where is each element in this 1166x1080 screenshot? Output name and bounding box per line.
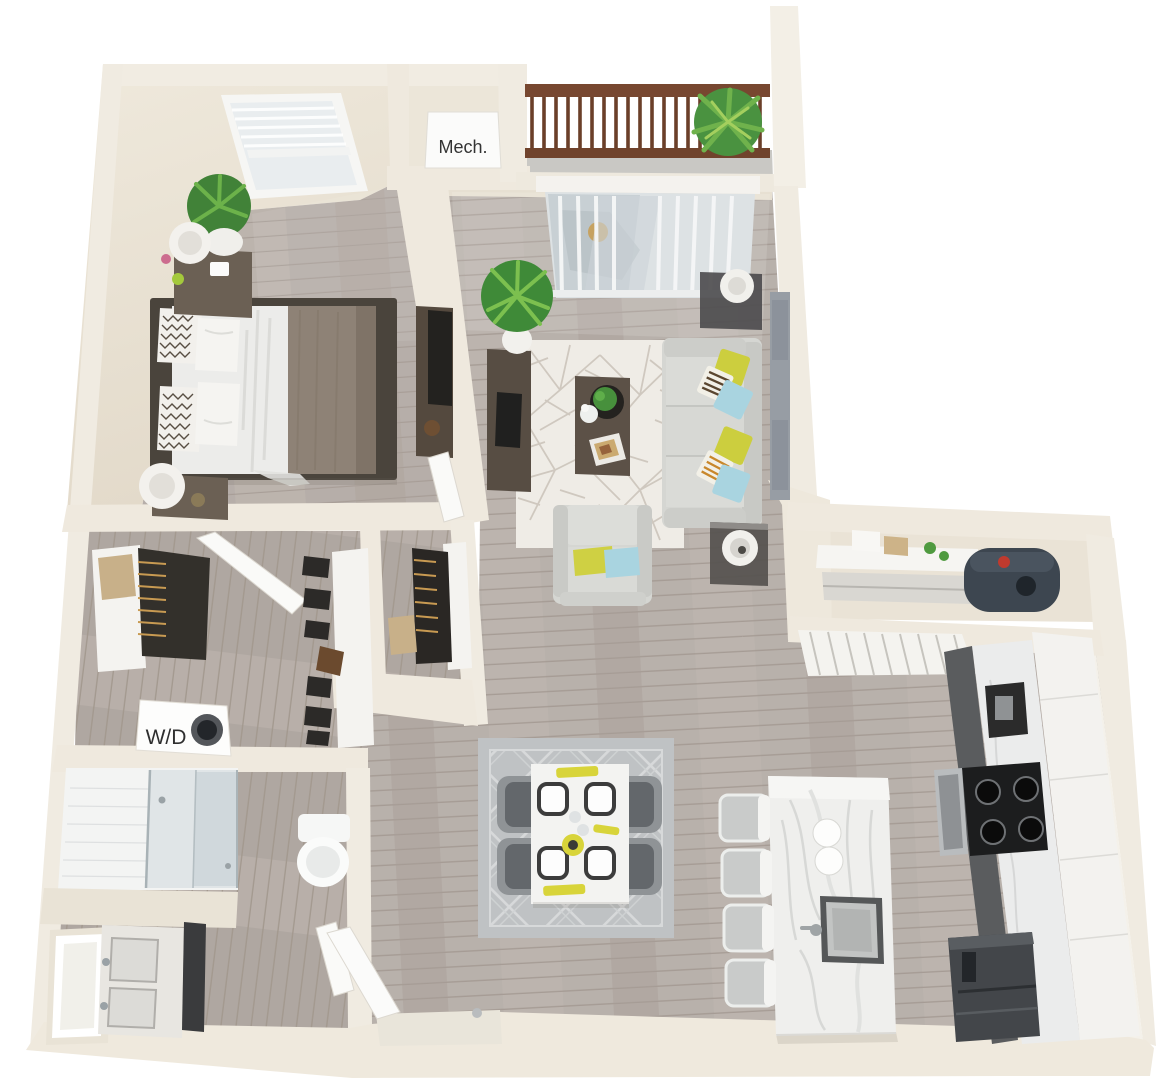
svg-text:Mech.: Mech. <box>438 137 487 157</box>
svg-text:W/D: W/D <box>146 726 187 749</box>
